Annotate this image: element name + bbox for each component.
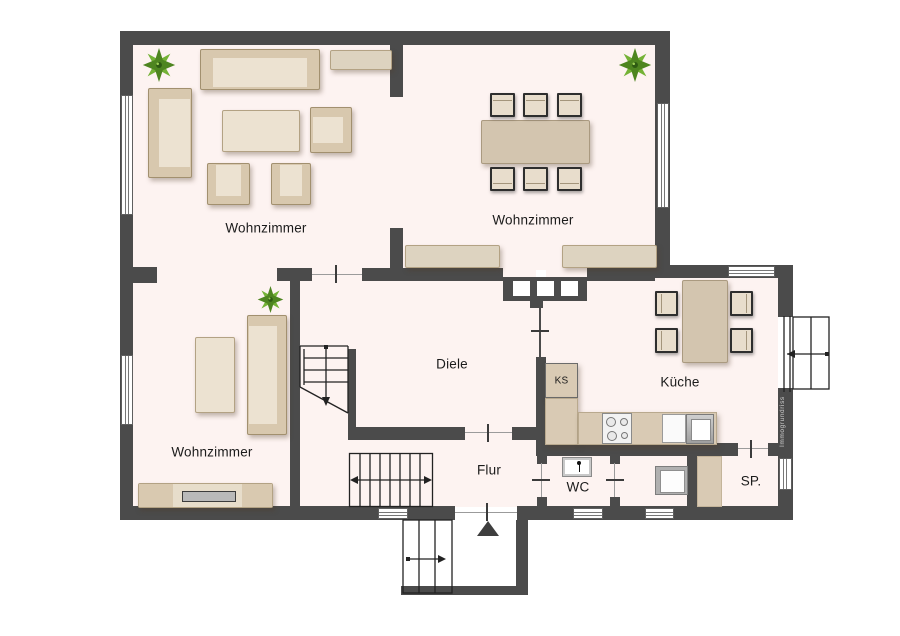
room-label-diele: Diele [436, 357, 468, 372]
armchair [207, 163, 250, 205]
room-label-living2: Wohnzimmer [492, 213, 573, 228]
window [645, 508, 674, 519]
sofa [247, 315, 287, 435]
tv-icon [182, 491, 236, 502]
door-tick [531, 330, 549, 332]
glass-block [537, 281, 554, 296]
sideboard [330, 50, 392, 70]
armchair [271, 163, 311, 205]
armchair [310, 107, 352, 153]
fridge: KS [545, 363, 578, 398]
wall [512, 427, 536, 440]
washbasin-icon [563, 458, 591, 476]
stairs-exterior-east [780, 312, 834, 396]
coffee-table [195, 337, 235, 413]
sofa [148, 88, 192, 178]
wall [687, 456, 697, 507]
window [779, 458, 792, 490]
window [121, 95, 133, 215]
glass-block-wall [503, 277, 587, 301]
window [573, 508, 603, 519]
wall [133, 267, 157, 283]
kitchen-chair [655, 291, 678, 316]
sink-icon [686, 414, 714, 444]
window [121, 355, 133, 425]
room-label-living3: Wohnzimmer [171, 445, 252, 460]
sideboard [562, 245, 657, 268]
stove-icon [602, 413, 632, 444]
kitchen-chair [730, 328, 753, 353]
entrance-arrow-icon [477, 521, 499, 536]
door-tick [486, 503, 488, 521]
wall [537, 497, 547, 507]
wall [362, 268, 503, 281]
room-label-wc: WC [567, 480, 590, 495]
dining-chair [490, 167, 515, 191]
wall [539, 308, 541, 357]
glass-block [561, 281, 578, 296]
kitchen-chair [730, 291, 753, 316]
wall [610, 497, 620, 507]
wall [390, 228, 403, 272]
dining-chair [490, 93, 515, 117]
fridge-label: KS [555, 375, 569, 386]
wall [610, 456, 620, 464]
door-tick [487, 424, 489, 442]
dining-chair [557, 93, 582, 117]
plant-icon [618, 48, 652, 82]
door-tick [532, 479, 550, 481]
room-label-flur: Flur [477, 463, 501, 478]
kitchen-counter [545, 398, 578, 445]
dishwasher [662, 414, 686, 443]
kitchen-chair [655, 328, 678, 353]
wall [530, 301, 543, 308]
door-tick [335, 265, 337, 283]
sofa [200, 49, 320, 90]
room-label-kueche: Küche [660, 375, 699, 390]
floor-plan-canvas: KS [0, 0, 900, 636]
wall [348, 427, 465, 440]
tv-sideboard [138, 483, 273, 508]
dining-chair [557, 167, 582, 191]
door-opening [312, 274, 362, 275]
window [657, 103, 669, 208]
wall [537, 456, 547, 464]
window [728, 266, 775, 277]
wall [587, 268, 655, 281]
kitchen-table [682, 280, 728, 363]
coffee-table [222, 110, 300, 152]
door-tick [750, 440, 752, 458]
room-label-living1: Wohnzimmer [225, 221, 306, 236]
dining-table [481, 120, 590, 164]
plant-icon [142, 48, 176, 82]
cabinet [697, 456, 722, 507]
sideboard [405, 245, 500, 268]
stairs-exterior-entrance [400, 517, 456, 597]
room-label-sp: SP. [741, 474, 762, 489]
dining-chair [523, 167, 548, 191]
dining-chair [523, 93, 548, 117]
appliance [655, 466, 688, 495]
watermark: Immogrundriss [779, 396, 793, 448]
stairs-basement [348, 452, 434, 508]
stairs-up [296, 343, 360, 417]
door-tick [606, 479, 624, 481]
plant-icon [257, 286, 284, 313]
door-opening [738, 448, 768, 449]
wall [778, 265, 793, 317]
porch-wall [516, 520, 528, 593]
glass-block [513, 281, 530, 296]
